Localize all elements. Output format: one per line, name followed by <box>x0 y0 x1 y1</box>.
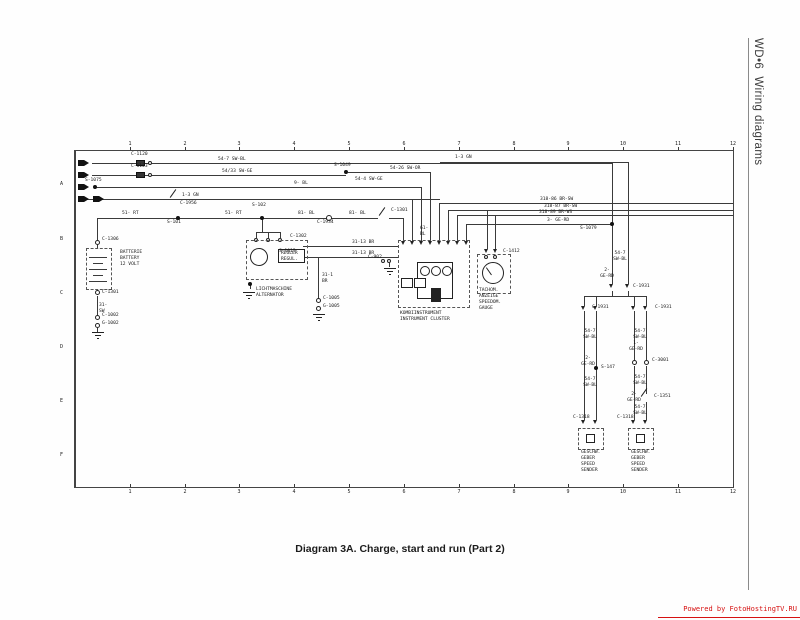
diagram-label: C-1302 <box>290 234 307 240</box>
gauge-icon <box>420 266 430 276</box>
grid-tick <box>459 484 460 487</box>
diagram-label: C-1301 <box>102 290 119 296</box>
diagram-label: 54-26 SW-OR <box>390 166 420 172</box>
grid-row-letter: A <box>60 181 63 187</box>
connector-circle-icon <box>632 360 637 365</box>
grid-row-letter: B <box>60 236 63 242</box>
connector-circle-icon <box>148 173 152 177</box>
wire-segment <box>457 215 458 243</box>
connector-pin-icon <box>609 284 613 288</box>
splice-dot <box>344 170 348 174</box>
wire-segment <box>85 199 440 200</box>
diagram-frame-right <box>733 150 734 488</box>
wire-segment <box>97 218 98 240</box>
diagram-label: 2- GE-RD <box>627 392 641 404</box>
diagram-label: 318-89 BR-WS <box>539 210 572 216</box>
diagram-label: 3- GE-RD <box>547 218 569 224</box>
grid-col-number: 10 <box>620 489 626 495</box>
grid-col-number: 4 <box>292 489 295 495</box>
wire-segment <box>303 246 398 247</box>
harness-arrow-icon <box>93 196 104 202</box>
component-box <box>414 278 426 288</box>
grid-tick <box>678 484 679 487</box>
harness-arrow-icon <box>78 196 89 202</box>
ground-icon <box>248 298 250 299</box>
wire-segment <box>448 210 733 211</box>
component-outline <box>86 248 112 290</box>
connector-pin-icon <box>625 284 629 288</box>
connector-pin-icon <box>484 249 488 253</box>
diagram-label: KOMBIINSTRUMENT INSTRUMENT CLUSTER <box>400 311 450 323</box>
diagram-label: LICHTMASCHINE ALTERNATOR <box>256 287 292 299</box>
diagram-label: G-1002 <box>102 321 119 327</box>
gauge-icon <box>250 248 268 266</box>
wire-segment <box>412 199 413 243</box>
wire-segment <box>439 203 440 243</box>
connector-circle-icon <box>95 240 100 245</box>
wire-segment <box>389 218 403 219</box>
grid-tick <box>568 484 569 487</box>
grid-tick <box>733 147 734 150</box>
diagram-label: C-902 <box>368 255 382 261</box>
wiring-diagram: 112233445566778899101011111212ABCDEFC-11… <box>0 0 800 620</box>
grid-row-letter: E <box>60 398 63 404</box>
ground-icon <box>318 320 320 321</box>
grid-tick <box>349 484 350 487</box>
grid-tick <box>130 484 131 487</box>
grid-col-number: 6 <box>402 489 405 495</box>
diagram-label: C-1351 <box>654 394 671 400</box>
sidebar-title: WD•6 Wiring diagrams <box>752 38 764 165</box>
grid-tick <box>514 484 515 487</box>
wire-segment <box>97 296 98 315</box>
wire-segment <box>97 218 378 219</box>
wire-segment <box>584 296 585 306</box>
grid-col-number: 9 <box>566 489 569 495</box>
diagram-label: C-1318 <box>617 415 634 421</box>
grid-tick <box>404 484 405 487</box>
wire-segment <box>612 291 613 296</box>
diagram-label: C-1120 <box>131 152 148 158</box>
diagram-label: 54-7 SW-BL <box>583 377 597 389</box>
grid-tick <box>294 147 295 150</box>
wire-segment <box>262 218 263 232</box>
diagram-label: C-3001 <box>652 358 669 364</box>
diagram-caption: Diagram 3A. Charge, start and run (Part … <box>0 543 800 555</box>
diagram-label: C-1301 <box>391 208 408 214</box>
ground-icon <box>316 317 322 318</box>
switch-icon <box>170 189 177 198</box>
wire-segment <box>584 296 646 297</box>
connector-circle-icon <box>644 360 649 365</box>
component-box <box>636 434 645 443</box>
connector-circle-icon <box>95 323 100 328</box>
switch-icon <box>379 207 386 216</box>
ground-icon <box>387 271 393 272</box>
wire-segment <box>430 172 431 243</box>
diagram-label: 318-86 BR-SW <box>540 197 573 203</box>
wire-segment <box>646 296 647 306</box>
wire-segment <box>448 210 449 243</box>
watermark-underline <box>658 617 800 618</box>
connector-circle-icon <box>387 259 391 263</box>
connector-pin-icon <box>593 420 597 424</box>
diagram-label: C-1005 <box>323 296 340 302</box>
grid-tick <box>130 147 131 150</box>
grid-row-letter: C <box>60 290 63 296</box>
harness-arrow-icon <box>78 184 89 190</box>
diagram-label: C-1931 <box>633 284 650 290</box>
wire-segment <box>487 210 488 249</box>
diagram-label: S-1049 <box>334 163 351 169</box>
diagram-frame-left <box>74 150 76 488</box>
component-box <box>401 278 413 288</box>
ground-icon <box>313 314 325 315</box>
harness-arrow-icon <box>78 160 89 166</box>
splice-dot <box>248 282 252 286</box>
wire-segment <box>92 175 346 176</box>
ground-icon <box>97 338 99 339</box>
gauge-icon <box>431 266 441 276</box>
connector-circle-icon <box>316 298 321 303</box>
ground-icon <box>389 274 391 275</box>
gauge-icon <box>482 262 504 284</box>
diagram-label: 1- GE-RD <box>629 341 643 353</box>
grid-col-number: 5 <box>347 489 350 495</box>
diagram-label: 54-7 SW-BL <box>613 251 627 263</box>
ground-icon <box>95 335 101 336</box>
grid-col-number: 11 <box>675 489 681 495</box>
grid-tick <box>294 484 295 487</box>
diagram-label: C-1123 <box>131 164 148 170</box>
grid-row-letter: F <box>60 452 63 458</box>
diagram-label: 31-1 BR <box>322 273 333 285</box>
grid-tick <box>459 147 460 150</box>
ground-icon <box>92 332 104 333</box>
ground-icon <box>246 295 252 296</box>
grid-tick <box>568 147 569 150</box>
diagram-label: S-101 <box>167 220 181 226</box>
connector-circle-icon <box>95 315 100 320</box>
ground-icon <box>243 292 255 293</box>
wire-segment <box>440 162 628 163</box>
diagram-label: 81- BL <box>298 211 315 217</box>
wire-segment <box>457 215 733 216</box>
diagram-label: 31-13 BR <box>352 240 374 246</box>
grid-col-number: 2 <box>183 489 186 495</box>
diagram-label: 51- RT <box>122 211 139 217</box>
manual-page: 112233445566778899101011111212ABCDEFC-11… <box>0 0 800 620</box>
grid-col-number: 3 <box>237 489 240 495</box>
diagram-label: 54/33 SW-GE <box>222 169 252 175</box>
diagram-label: 1-3 GN <box>455 155 472 161</box>
diagram-label: C-1318 <box>573 415 590 421</box>
grid-col-number: 1 <box>128 489 131 495</box>
diagram-label: GESCHW. GEBER SPEED SENDER <box>581 450 600 474</box>
grid-tick <box>514 147 515 150</box>
diagram-label: REGLER REGUL. <box>281 251 298 263</box>
grid-tick <box>239 484 240 487</box>
grid-tick <box>733 484 734 487</box>
grid-col-number: 12 <box>730 489 736 495</box>
wire-segment <box>495 215 496 249</box>
connector-pin-icon <box>631 306 635 310</box>
grid-tick <box>623 147 624 150</box>
wire-segment <box>439 203 733 204</box>
splice-dot <box>93 185 97 189</box>
indicator-block <box>431 288 441 302</box>
sidebar-rule <box>748 38 749 590</box>
grid-tick <box>185 147 186 150</box>
diagram-label: 54-7 SW-BL <box>633 405 647 417</box>
connector-circle-icon <box>148 161 152 165</box>
diagram-label: C-1934 <box>317 220 334 226</box>
wire-segment <box>389 263 390 267</box>
diagram-frame-top <box>75 150 733 151</box>
diagram-label: 54-7 SW-BL <box>583 329 597 341</box>
diagram-label: 81- BL <box>349 211 366 217</box>
wire-segment <box>348 172 430 173</box>
wire-segment <box>628 291 629 296</box>
diagram-label: C-1956 <box>180 201 197 207</box>
inline-connector-icon <box>136 172 145 178</box>
diagram-label: 61- BL <box>420 226 428 238</box>
connector-pin-icon <box>643 420 647 424</box>
connector-circle-icon <box>316 306 321 311</box>
watermark-text: Powered by FotoHostingTV.RU <box>683 605 797 613</box>
diagram-label: C-1931 <box>592 305 609 311</box>
grid-tick <box>623 484 624 487</box>
diagram-label: TACHOM. ANZEIGE SPEEDOM. GAUGE <box>479 288 501 312</box>
diagram-label: G-1005 <box>323 304 340 310</box>
connector-pin-icon <box>493 249 497 253</box>
grid-tick <box>349 147 350 150</box>
grid-col-number: 7 <box>457 489 460 495</box>
diagram-label: S-1079 <box>580 226 597 232</box>
diagram-frame-bottom <box>75 487 733 488</box>
splice-dot <box>610 222 614 226</box>
diagram-label: S-1075 <box>85 178 102 184</box>
diagram-label: 54-7 SW-BL <box>633 329 647 341</box>
diagram-label: 54-7 SW-BL <box>218 157 246 163</box>
diagram-label: S-147 <box>601 365 615 371</box>
diagram-label: C-1306 <box>102 237 119 243</box>
wire-segment <box>318 257 319 300</box>
diagram-label: 54-7 SW-BL <box>633 375 647 387</box>
diagram-label: 51- RT <box>225 211 242 217</box>
connector-circle-icon <box>95 290 100 295</box>
diagram-label: 2- GE-RD <box>581 356 595 368</box>
diagram-label: C-1002 <box>102 313 119 319</box>
grid-tick <box>185 484 186 487</box>
wire-segment <box>95 187 421 188</box>
connector-pin-icon <box>581 306 585 310</box>
diagram-label: 54-4 SW-GE <box>355 177 383 183</box>
grid-row-letter: D <box>60 344 63 350</box>
diagram-label: BATTERIE BATTERY 12 VOLT <box>120 250 142 268</box>
diagram-label: C-1931 <box>655 305 672 311</box>
diagram-label: GESCHW. GEBER SPEED SENDER <box>631 450 650 474</box>
diagram-label: 9- BL <box>294 181 308 187</box>
wire-segment <box>634 296 635 306</box>
diagram-label: 2- GE-RD <box>600 268 614 280</box>
grid-tick <box>678 147 679 150</box>
connector-pin-icon <box>643 306 647 310</box>
diagram-label: S-102 <box>252 203 266 209</box>
grid-tick <box>239 147 240 150</box>
grid-tick <box>404 147 405 150</box>
diagram-label: 1-3 GN <box>182 193 199 199</box>
splice-dot <box>260 216 264 220</box>
grid-col-number: 8 <box>512 489 515 495</box>
component-box <box>586 434 595 443</box>
ground-icon <box>384 268 396 269</box>
wire-segment <box>628 162 629 284</box>
diagram-label: C-1412 <box>503 249 520 255</box>
wire-segment <box>92 163 612 164</box>
gauge-icon <box>442 266 452 276</box>
